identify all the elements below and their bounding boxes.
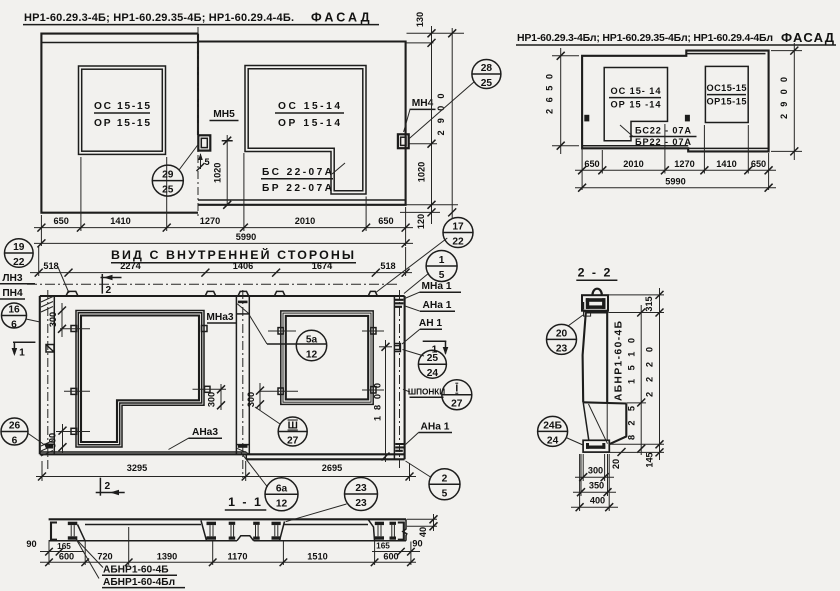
svg-text:29: 29 [162,170,174,181]
svg-text:БР 22-07А: БР 22-07А [262,183,333,194]
svg-text:24Б: 24Б [543,420,562,431]
svg-text:90: 90 [412,539,422,549]
svg-text:300: 300 [246,392,256,407]
svg-text:17: 17 [452,222,464,233]
svg-text:40: 40 [418,527,428,537]
svg-text:АБНР1-60-4Бл: АБНР1-60-4Бл [103,577,175,588]
svg-text:650: 650 [54,216,69,226]
svg-text:2: 2 [106,285,112,296]
svg-text:650: 650 [584,159,599,169]
svg-text:НР1-60.29.3-4Бл; НР1-60.29.35-: НР1-60.29.3-4Бл; НР1-60.29.35-4Бл; НР1-6… [517,32,773,44]
svg-text:23: 23 [355,498,367,509]
svg-text:1410: 1410 [716,159,736,169]
svg-text:25: 25 [427,353,439,364]
svg-text:350: 350 [589,481,604,491]
svg-text:ОС15-15: ОС15-15 [707,83,747,93]
svg-text:5990: 5990 [665,176,685,186]
svg-text:2010: 2010 [623,159,643,169]
svg-text:3295: 3295 [127,463,147,473]
svg-text:650: 650 [378,216,393,226]
svg-text:ОС 15- 14: ОС 15- 14 [611,86,662,96]
svg-text:22: 22 [13,257,25,268]
svg-text:165: 165 [376,542,390,551]
svg-text:1020: 1020 [417,162,427,182]
svg-text:518: 518 [380,261,395,271]
svg-text:1390: 1390 [157,551,177,561]
svg-text:БС 22-07А: БС 22-07А [262,167,333,178]
svg-text:300: 300 [206,392,216,407]
svg-text:1270: 1270 [200,216,220,226]
svg-text:ОР 15 -14: ОР 15 -14 [611,100,662,110]
svg-text:22: 22 [452,237,464,248]
svg-text:145: 145 [645,452,655,467]
svg-text:1020: 1020 [213,163,223,183]
svg-text:165: 165 [57,542,71,551]
svg-text:БР22 - 07А: БР22 - 07А [635,137,691,147]
svg-text:2: 2 [105,481,111,492]
svg-text:5990: 5990 [236,232,256,242]
svg-text:5: 5 [204,157,209,167]
svg-text:19: 19 [13,242,25,253]
svg-text:20: 20 [611,459,621,469]
svg-text:600: 600 [59,551,74,561]
svg-text:650: 650 [751,159,766,169]
svg-text:20: 20 [556,328,568,339]
svg-text:МНа 1: МНа 1 [421,281,451,292]
svg-text:2: 2 [442,473,448,484]
svg-text:АБНР1-60-4Б: АБНР1-60-4Б [103,565,169,576]
svg-text:1 - 1: 1 - 1 [228,495,263,509]
svg-text:ФАСАД: ФАСАД [781,30,836,45]
svg-text:1: 1 [19,348,25,359]
svg-text:6а: 6а [276,483,288,494]
svg-text:24: 24 [547,435,559,446]
svg-text:1270: 1270 [674,159,694,169]
svg-text:АНа 1: АНа 1 [421,421,450,432]
svg-text:ФАСАД: ФАСАД [311,11,373,25]
svg-text:24: 24 [427,368,439,379]
svg-text:25: 25 [162,185,174,196]
svg-text:26: 26 [9,421,21,432]
svg-text:Ш: Ш [288,421,298,432]
svg-text:5а: 5а [306,335,318,346]
svg-text:130: 130 [415,12,425,27]
svg-text:12: 12 [306,350,318,361]
svg-text:6: 6 [12,436,18,447]
svg-text:5: 5 [439,270,445,281]
svg-text:300: 300 [48,433,58,448]
svg-text:АНа3: АНа3 [192,427,218,438]
svg-text:1: 1 [439,255,445,266]
svg-text:23: 23 [355,483,367,494]
svg-text:ШПОНКИ: ШПОНКИ [408,388,445,397]
svg-text:1674: 1674 [312,261,333,271]
svg-text:АБНР1-60-4Б: АБНР1-60-4Б [614,321,625,401]
svg-text:2 - 2: 2 - 2 [578,266,613,280]
svg-text:ПН4: ПН4 [2,288,23,299]
svg-text:518: 518 [43,261,58,271]
svg-text:1406: 1406 [233,261,253,271]
svg-text:600: 600 [383,551,398,561]
svg-text:6: 6 [11,320,17,331]
svg-text:БС22 - 07А: БС22 - 07А [635,126,691,136]
svg-text:300: 300 [588,466,603,476]
svg-text:НР1-60.29.3-4Б; НР1-60.29.35-4: НР1-60.29.3-4Б; НР1-60.29.35-4Б; НР1-60.… [24,12,294,24]
svg-text:315: 315 [644,296,654,311]
svg-text:МН5: МН5 [213,109,235,120]
svg-text:1510: 1510 [307,551,327,561]
svg-text:28: 28 [481,63,493,74]
svg-text:АНа 1: АНа 1 [423,300,452,311]
svg-text:I: I [455,384,458,395]
svg-text:1410: 1410 [110,216,130,226]
svg-text:400: 400 [590,496,605,506]
svg-text:16: 16 [8,305,20,316]
svg-text:2010: 2010 [295,216,315,226]
svg-text:ОР15-15: ОР15-15 [707,97,747,107]
svg-text:1170: 1170 [228,551,248,561]
svg-text:2695: 2695 [322,463,342,473]
svg-text:90: 90 [26,539,36,549]
svg-text:2274: 2274 [120,261,141,271]
svg-text:120: 120 [416,214,426,229]
svg-text:АН 1: АН 1 [419,318,443,329]
svg-text:5: 5 [442,488,448,499]
svg-text:25: 25 [481,78,493,89]
svg-text:825: 825 [627,406,637,440]
svg-text:27: 27 [287,436,299,447]
svg-text:МН4: МН4 [412,98,434,109]
svg-text:27: 27 [451,399,463,410]
svg-text:720: 720 [97,551,112,561]
svg-text:300: 300 [48,312,58,327]
svg-text:ЛН3: ЛН3 [2,273,23,284]
svg-text:ВИД С ВНУТРЕННЕЙ СТОРОНЫ: ВИД С ВНУТРЕННЕЙ СТОРОНЫ [111,247,356,262]
svg-text:23: 23 [556,343,568,354]
svg-text:МНа3: МНа3 [206,312,234,323]
svg-text:12: 12 [276,498,288,509]
